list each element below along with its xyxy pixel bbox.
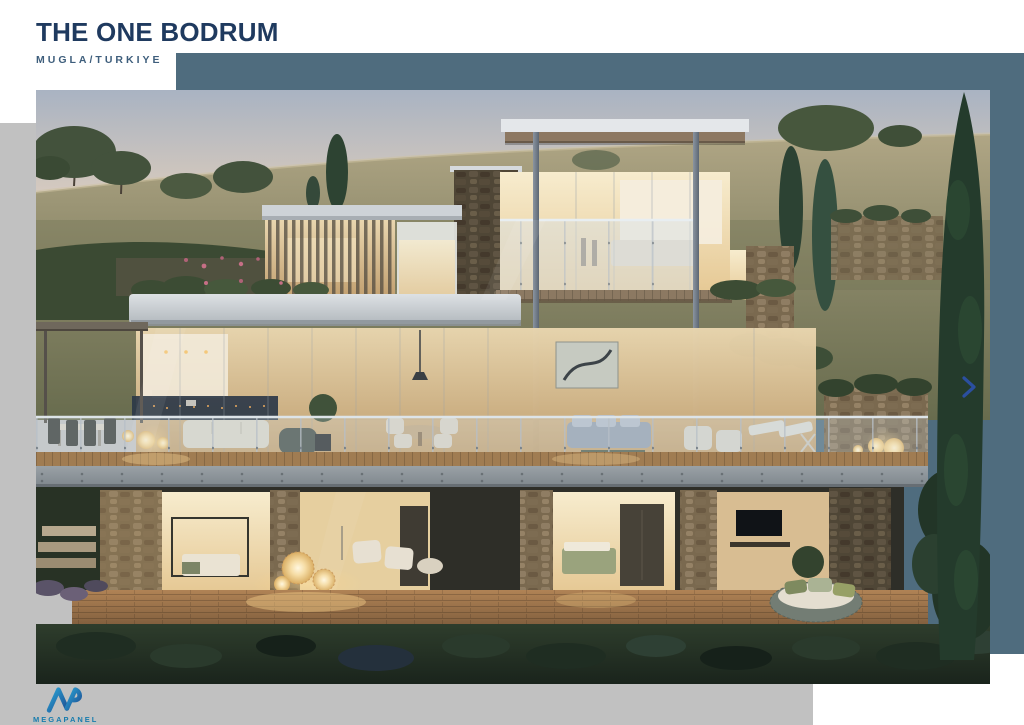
villa-rendering-photo: [36, 90, 990, 684]
logo: MEGAPANEL: [33, 686, 153, 724]
slide: THE ONE BODRUM MUGLA/TURKIYE: [0, 0, 1024, 725]
slide-subtitle: MUGLA/TURKIYE: [36, 54, 279, 66]
megapanel-logo-icon: [45, 686, 85, 714]
slide-title: THE ONE BODRUM: [36, 18, 279, 47]
slide-header: THE ONE BODRUM MUGLA/TURKIYE: [36, 18, 279, 66]
next-arrow-icon[interactable]: [960, 376, 980, 398]
logo-text: MEGAPANEL: [33, 715, 153, 724]
